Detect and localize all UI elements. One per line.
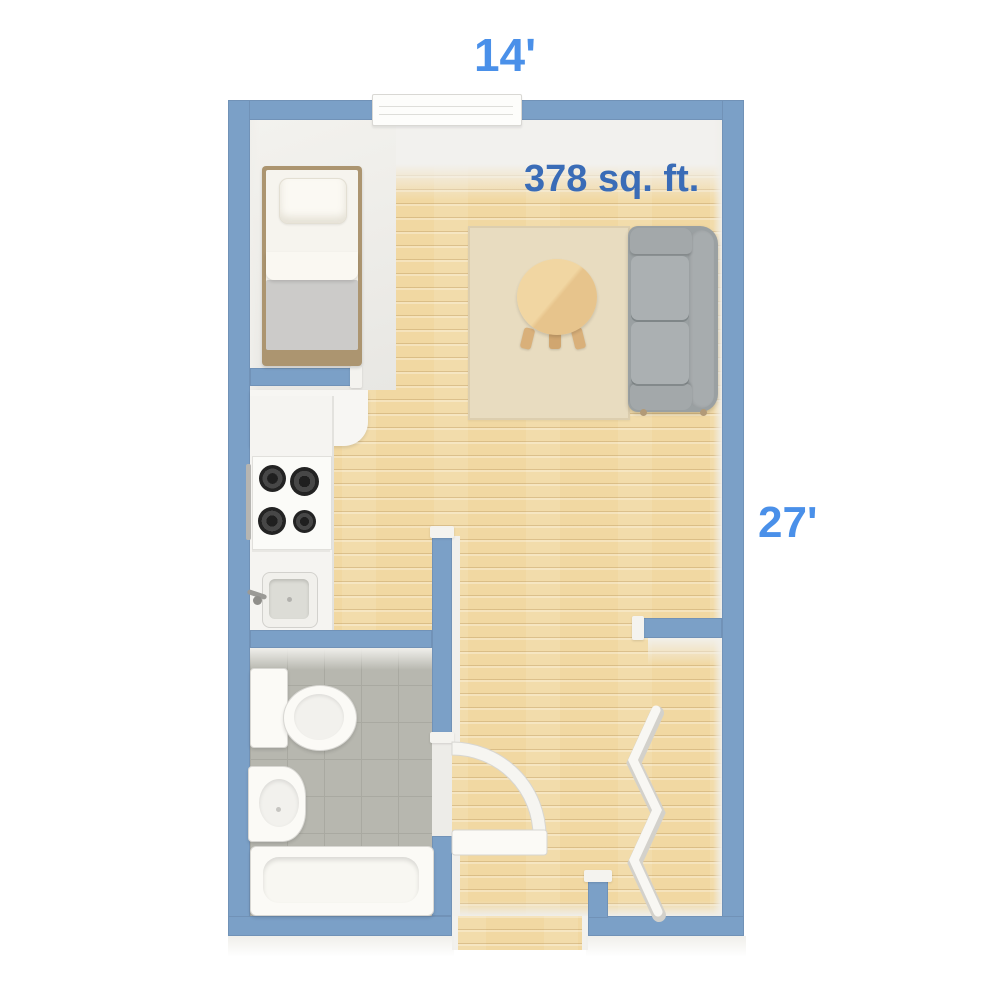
sofa-armrest <box>630 384 692 410</box>
width-dimension-label: 14' <box>430 28 580 82</box>
sofa-foot <box>640 409 647 416</box>
bed <box>262 166 362 366</box>
stove-burner <box>290 467 319 496</box>
counter-seam <box>252 550 330 552</box>
toilet <box>283 685 357 751</box>
wall-end-cap <box>430 526 454 538</box>
bottom-wall-outer-face-left <box>228 936 454 957</box>
kitchen-sink-drain <box>287 597 292 602</box>
sofa-cushion <box>631 322 689 384</box>
sofa-backrest <box>688 230 714 408</box>
height-dimension-label: 27' <box>758 498 817 548</box>
bathroom-divider-face <box>250 648 432 670</box>
closet-stub-face <box>648 637 722 665</box>
window <box>372 94 522 126</box>
toilet-tank <box>250 668 288 748</box>
wall-closet-stub <box>640 618 722 638</box>
pedestal-sink <box>248 766 306 842</box>
wall-end-cap <box>350 366 362 388</box>
bathroom-door-threshold <box>432 742 452 836</box>
sink-drain <box>276 807 281 812</box>
wall-entry-stub <box>588 880 608 918</box>
wall-kitchen-bathroom-divider <box>250 630 432 648</box>
sofa-foot <box>700 409 707 416</box>
wall-end-cap <box>430 732 454 743</box>
bottom-wall-outer-face-right <box>586 936 746 957</box>
wall-bottom-right <box>588 916 744 936</box>
wall-bed-kitchen-divider <box>250 368 356 386</box>
area-label: 378 sq. ft. <box>524 158 699 201</box>
wall-bottom-left <box>228 916 452 936</box>
oven-handle <box>246 464 251 540</box>
stove-burner <box>293 510 316 533</box>
wall-right <box>722 100 744 936</box>
bed-blanket <box>266 280 358 350</box>
sofa-armrest <box>630 228 692 254</box>
sink-bowl <box>259 779 299 827</box>
entry-floor-extension <box>452 916 588 950</box>
stove-burner <box>259 465 286 492</box>
wall-end-cap <box>584 870 612 882</box>
round-table <box>517 259 597 335</box>
bathtub-basin <box>263 857 419 903</box>
bed-pillow <box>279 178 347 224</box>
stove-burner <box>258 507 286 535</box>
sofa <box>628 226 718 412</box>
hall-wall-face-lower <box>452 836 460 916</box>
window-pane-lines <box>379 106 513 115</box>
sofa-cushion <box>631 256 689 320</box>
bathtub <box>250 846 434 916</box>
wall-hall-upper <box>432 536 452 742</box>
toilet-seat <box>294 694 344 740</box>
kitchen-faucet-base <box>253 596 262 605</box>
wall-end-cap <box>632 616 644 640</box>
floor-plan: 14' 378 sq. ft. 27' <box>0 0 1000 1000</box>
wall-hall-lower <box>432 836 452 916</box>
bed-sheet-fold <box>266 252 358 280</box>
kitchen-sink <box>262 572 318 628</box>
hall-wall-face-upper <box>452 536 460 742</box>
